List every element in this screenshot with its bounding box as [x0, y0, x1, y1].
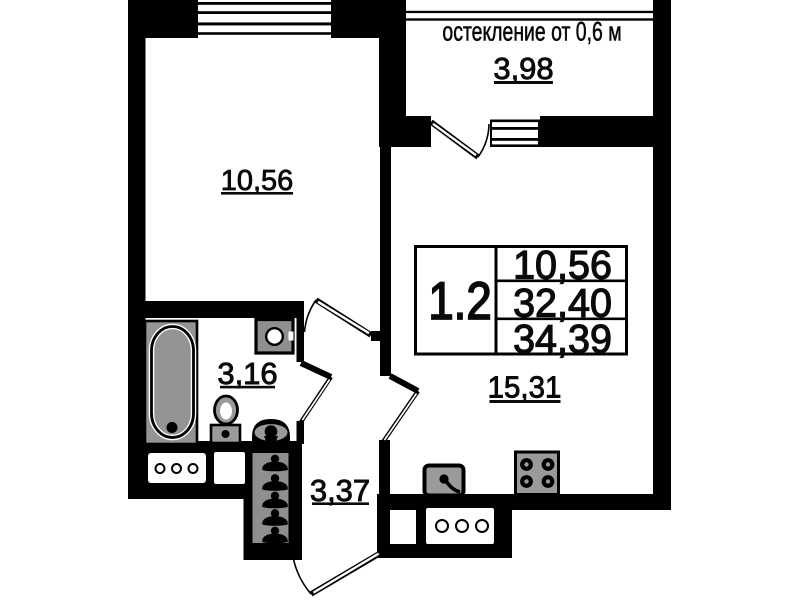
svg-text:15,31: 15,31: [488, 371, 562, 405]
svg-text:остекление от 0,6 м: остекление от 0,6 м: [442, 16, 621, 46]
svg-text:3,98: 3,98: [493, 51, 553, 86]
svg-text:3,16: 3,16: [217, 356, 277, 391]
svg-text:1.2: 1.2: [428, 272, 491, 331]
svg-text:34,39: 34,39: [513, 318, 612, 362]
